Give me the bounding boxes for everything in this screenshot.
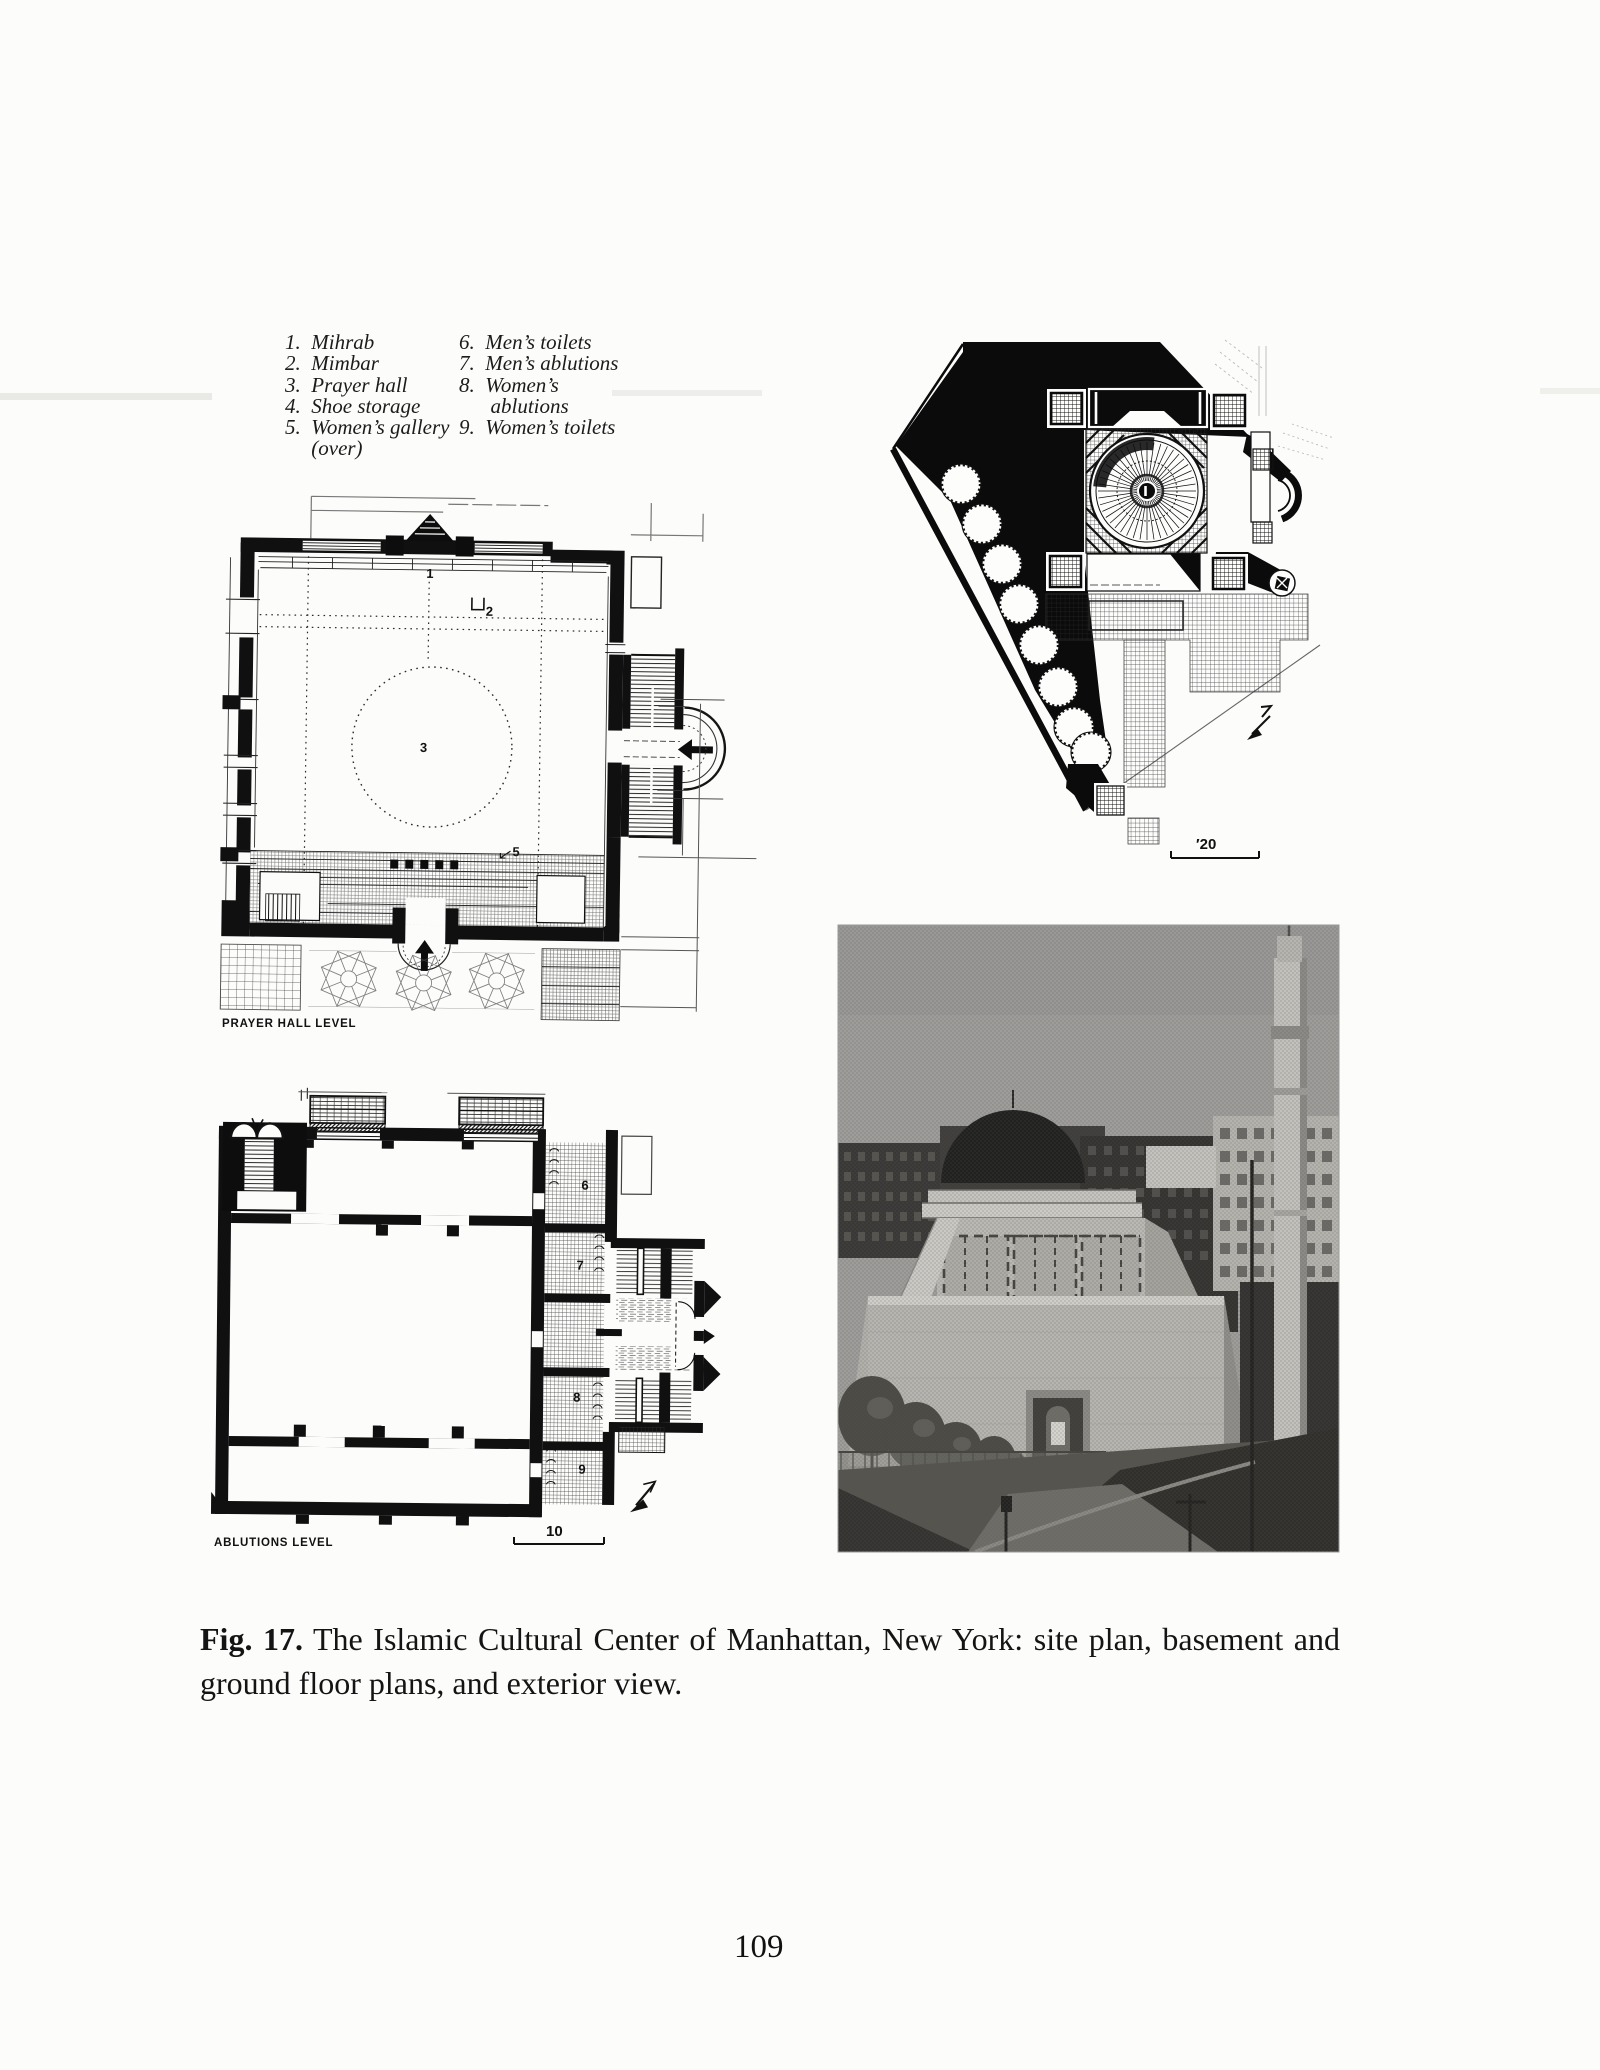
svg-text:PRAYER HALL LEVEL: PRAYER HALL LEVEL <box>222 1018 356 1030</box>
svg-text:8: 8 <box>573 1390 580 1405</box>
svg-text:6: 6 <box>581 1178 588 1193</box>
svg-text:10: 10 <box>546 1523 563 1540</box>
svg-text:′20: ′20 <box>1196 836 1216 853</box>
svg-text:9: 9 <box>578 1462 585 1477</box>
svg-text:ABLUTIONS LEVEL: ABLUTIONS LEVEL <box>214 1537 333 1549</box>
svg-text:2: 2 <box>486 604 493 619</box>
svg-text:7: 7 <box>577 1258 584 1273</box>
svg-text:3: 3 <box>420 740 427 755</box>
svg-text:1: 1 <box>426 566 433 581</box>
